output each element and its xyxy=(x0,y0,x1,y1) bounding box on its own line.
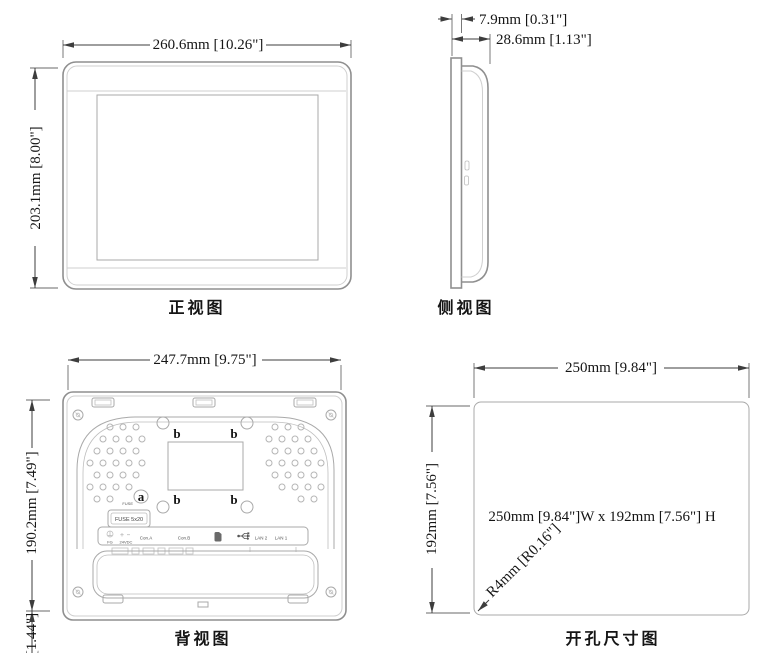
back-bottom-label: [1.44"] xyxy=(24,613,40,653)
connector-strip: FG 24VDC Con.A Con.B xyxy=(98,527,308,545)
side-view: 7.9mm [0.31"] 28.6mm [1.13"] 侧视图 xyxy=(437,12,591,317)
callout-b-top-right: b xyxy=(230,426,237,441)
front-view: 260.6mm [10.26"] 203.1mm [8.00"] 正视图 xyxy=(28,37,351,317)
arch-outline xyxy=(77,417,334,549)
corner-radius-callout: R4mm [R0.16"] xyxy=(478,521,563,611)
front-height-dimension: 203.1mm [8.00"] xyxy=(28,68,58,288)
callout-a: a xyxy=(138,489,145,504)
front-width-label: 260.6mm [10.26"] xyxy=(153,37,264,53)
back-view-caption: 背视图 xyxy=(174,629,231,648)
sd-card-icon xyxy=(215,532,222,542)
power-label: 24VDC xyxy=(120,540,133,545)
side-device-outline xyxy=(451,58,488,288)
cutout-center-label: 250mm [9.84"]W x 192mm [7.56"] H xyxy=(488,509,716,525)
side-slot-bottom xyxy=(465,176,469,185)
back-width-label: 247.7mm [9.75"] xyxy=(153,352,256,368)
fuse-caption: FUSE xyxy=(122,501,133,506)
front-view-caption: 正视图 xyxy=(168,298,225,317)
con-a-label: Con.A xyxy=(140,536,153,541)
cutout-width-dimension: 250mm [9.84"] xyxy=(474,360,749,398)
callout-b-top-left: b xyxy=(173,426,180,441)
mounting-clips xyxy=(92,398,316,407)
side-slot-top xyxy=(465,161,469,170)
side-bezel-depth-label: 7.9mm [0.31"] xyxy=(479,12,567,28)
ground-icon xyxy=(107,531,113,537)
callout-b-bottom-left: b xyxy=(173,492,180,507)
bottom-notch xyxy=(198,602,208,607)
front-width-dimension: 260.6mm [10.26"] xyxy=(63,37,351,58)
side-view-caption: 侧视图 xyxy=(437,298,494,317)
back-height-label: 190.2mm [7.49"] xyxy=(24,451,40,554)
con-b-label: Con.B xyxy=(178,536,191,541)
callout-b-bottom-right: b xyxy=(230,492,237,507)
lan2-label: LAN 2 xyxy=(255,536,268,541)
front-screen-area xyxy=(97,95,318,260)
back-view: b b b b FUSE a FUSE 5x20 FG xyxy=(24,352,346,653)
dimension-drawing-page: 260.6mm [10.26"] 203.1mm [8.00"] 正视图 7.9… xyxy=(0,0,760,653)
usb-icon xyxy=(237,532,250,539)
connector-bay xyxy=(93,547,318,607)
fuse-box-label: FUSE 5x20 xyxy=(115,517,143,523)
cutout-height-label: 192mm [7.56"] xyxy=(424,463,440,555)
nameplate-area xyxy=(168,442,243,490)
cutout-height-dimension: 192mm [7.56"] xyxy=(424,406,470,613)
cutout-view: 250mm [9.84"] 192mm [7.56"] 250mm [9.84"… xyxy=(424,360,749,648)
back-device-outline: b b b b FUSE a FUSE 5x20 FG xyxy=(63,392,346,620)
corner-radius-label: R4mm [R0.16"] xyxy=(484,521,564,601)
corner-screws xyxy=(73,410,336,597)
dc-power-icon xyxy=(120,533,130,537)
front-height-label: 203.1mm [8.00"] xyxy=(28,126,44,229)
side-total-depth-dimension: 28.6mm [1.13"] xyxy=(452,32,592,64)
front-device-outline xyxy=(63,62,351,289)
lan1-label: LAN 1 xyxy=(275,536,288,541)
vesa-holes: b b b b xyxy=(157,417,253,513)
back-bottom-dimension: [1.44"] xyxy=(24,611,40,653)
fg-label: FG xyxy=(107,540,113,545)
side-total-depth-label: 28.6mm [1.13"] xyxy=(496,32,592,48)
back-width-dimension: 247.7mm [9.75"] xyxy=(68,352,341,390)
cutout-view-caption: 开孔尺寸图 xyxy=(565,629,660,648)
fuse-holder: FUSE a FUSE 5x20 xyxy=(108,489,150,527)
back-height-dimension: 190.2mm [7.49"] xyxy=(24,400,50,611)
cutout-width-label: 250mm [9.84"] xyxy=(565,360,657,376)
